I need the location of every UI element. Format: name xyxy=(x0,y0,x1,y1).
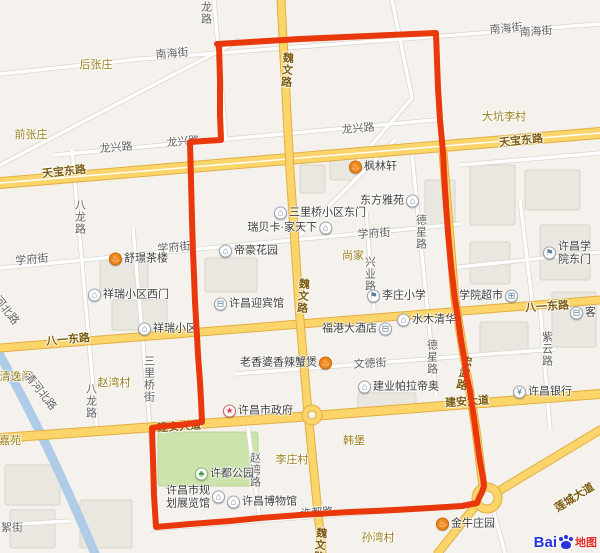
street-sanliqiaojie: 三里桥街 xyxy=(143,355,154,403)
poi-shujing-teahouse-label: 舒璟茶楼 xyxy=(124,253,168,266)
street-xuefujie-e: 学府街 xyxy=(357,224,391,242)
street-nanhaijie-e2: 南海街 xyxy=(519,22,553,40)
food-icon: ♨ xyxy=(436,518,449,531)
road-bayidonglu-w: 八一东路 xyxy=(45,329,90,349)
poi-ke-hotel[interactable]: ⊟客 xyxy=(570,307,596,320)
street-ziyunlu: 紫云路 xyxy=(541,331,552,367)
poi-fenglinxuan[interactable]: ♨枫林轩 xyxy=(349,161,397,174)
poi-fugang-hotel[interactable]: 福港大酒店⊟ xyxy=(322,323,392,336)
bldg-icon: ⌂ xyxy=(138,323,151,336)
poi-dihao-garden-label: 帝豪花园 xyxy=(234,245,278,258)
village-hanbao: 韩堡 xyxy=(343,432,365,448)
road-tianbaodonglu-e: 天宝东路 xyxy=(498,130,543,151)
village-shangjia: 尚家 xyxy=(342,247,364,263)
poi-xudu-park-label: 许都公园 xyxy=(210,468,254,481)
village-zhaowancun: 赵湾村 xyxy=(98,374,131,390)
poi-xiangrui-xiaoqu[interactable]: ⌂祥瑞小区 xyxy=(138,323,197,336)
street-xujie: 絮街 xyxy=(1,519,23,535)
poi-laoxiangpo-crab-pot[interactable]: 老香婆香辣蟹煲♨ xyxy=(240,357,332,370)
poi-xudu-park[interactable]: ♣许都公园 xyxy=(195,468,254,481)
bldg-icon: ⌂ xyxy=(397,314,410,327)
poi-sanliqiao-east-gate[interactable]: ⌂三里桥小区东门 xyxy=(274,207,366,220)
gov-icon: ★ xyxy=(223,405,236,418)
street-nanhaijie-e1: 南海街 xyxy=(489,19,523,38)
school-icon: ⚑ xyxy=(367,290,380,303)
poi-ruibeika-jiatianxia[interactable]: 瑞贝卡·家天下⌂ xyxy=(247,222,332,235)
street-nanhaijie-w: 南海街 xyxy=(155,44,189,63)
food-icon: ♨ xyxy=(109,253,122,266)
poi-xuchang-planning-hall[interactable]: 许昌市规 划展览馆⌂ xyxy=(166,484,225,509)
poi-xiangrui-west-gate-label: 祥瑞小区西门 xyxy=(103,289,169,302)
street-dexinglu-s: 德星路 xyxy=(426,339,437,375)
hotel-icon: ⊟ xyxy=(570,307,583,320)
hotel-icon: ⊟ xyxy=(379,323,392,336)
village-lizhuangcun: 李庄村 xyxy=(276,451,309,467)
poi-xuchang-bank[interactable]: ¥许昌银行 xyxy=(513,386,572,399)
poi-laoxiangpo-crab-pot-label: 老香婆香辣蟹煲 xyxy=(240,357,317,370)
food-icon: ♨ xyxy=(349,161,362,174)
food-icon: ♨ xyxy=(319,357,332,370)
poi-ke-hotel-label: 客 xyxy=(585,307,596,320)
poi-shuimuqinghua-label: 水木清华 xyxy=(412,314,456,327)
poi-shuimuqinghua[interactable]: ⌂水木清华 xyxy=(397,314,456,327)
market-icon: ⊞ xyxy=(505,290,518,303)
map-canvas[interactable]: 后张庄前张庄大坑李村尚家赵湾村清逸阁嘉苑李庄村韩堡孙湾村天宝东路天宝东路八一东路… xyxy=(0,0,600,553)
road-jiananddadao-e: 建安大道 xyxy=(444,391,489,410)
poi-ruibeika-jiatianxia-label: 瑞贝卡·家天下 xyxy=(247,222,317,235)
school-icon: ⚑ xyxy=(543,247,556,260)
poi-fenglinxuan-label: 枫林轩 xyxy=(364,161,397,174)
street-longxinglu-w: 龙兴路 xyxy=(99,138,133,157)
poi-xuchang-college-east-gate-label: 许昌学院东门 xyxy=(558,240,592,265)
bldg-icon: ⌂ xyxy=(358,381,371,394)
street-longxinglu-e: 龙兴路 xyxy=(341,119,375,138)
road-tianbaodonglu-w: 天宝东路 xyxy=(41,161,86,182)
bank-icon: ¥ xyxy=(513,386,526,399)
poi-dongfangyayuan-label: 东方雅苑 xyxy=(360,195,404,208)
street-dexinglu-n: 德星路 xyxy=(415,214,426,250)
street-longlu: 龙路 xyxy=(200,1,211,25)
road-jiananddadao-w: 建安大道 xyxy=(156,416,201,435)
baidu-paw-icon xyxy=(558,535,574,550)
village-houzhangzhuang: 后张庄 xyxy=(80,56,113,72)
village-qianzhangzhuang: 前张庄 xyxy=(15,126,48,142)
poi-jianye-palladio-label: 建业帕拉帝奥 xyxy=(373,381,439,394)
poi-fugang-hotel-label: 福港大酒店 xyxy=(322,323,377,336)
poi-jianye-palladio[interactable]: ⌂建业帕拉帝奥 xyxy=(358,381,439,394)
poi-lizhuang-primary-school[interactable]: ⚑李庄小学 xyxy=(367,290,426,303)
road-weiwenlu-s: 魏文路 xyxy=(312,527,327,553)
road-weiwenlu-m: 魏文路 xyxy=(295,278,308,315)
baidu-maps-logo: Bai 地图 xyxy=(534,535,597,550)
poi-jinniu-zhuangyuan[interactable]: ♨金牛庄园 xyxy=(436,518,495,531)
poi-xuchang-college-east-gate[interactable]: ⚑许昌学院东门 xyxy=(543,240,592,265)
bldg-icon: ⌂ xyxy=(319,222,332,235)
street-qinghebeilu: 清河北路 xyxy=(21,369,61,414)
poi-xuchang-city-government[interactable]: ★许昌市政府 xyxy=(223,405,293,418)
baidu-logo-text: Bai xyxy=(534,536,557,550)
museum-icon: ⌂ xyxy=(227,496,240,509)
road-bayidonglu-e: 八一东路 xyxy=(524,296,569,315)
poi-xueyuan-supermarket[interactable]: 学院超市⊞ xyxy=(459,290,518,303)
poi-xuchang-yingbinguan[interactable]: ⊟许昌迎宾馆 xyxy=(214,298,284,311)
village-jiayuan: 嘉苑 xyxy=(0,432,21,448)
museum-icon: ⌂ xyxy=(212,491,225,504)
poi-xiangrui-west-gate[interactable]: ⌂祥瑞小区西门 xyxy=(88,289,169,302)
hotel-icon: ⊟ xyxy=(214,298,227,311)
bldg-icon: ⌂ xyxy=(274,207,287,220)
poi-shujing-teahouse[interactable]: ♨舒璟茶楼 xyxy=(109,253,168,266)
poi-sanliqiao-east-gate-label: 三里桥小区东门 xyxy=(289,207,366,220)
street-wendejie: 文德街 xyxy=(353,354,387,372)
bldg-icon: ⌂ xyxy=(88,289,101,302)
village-sunwancun: 孙湾村 xyxy=(362,529,395,545)
street-hebeilu: 河北路 xyxy=(0,292,23,328)
street-xuefujie-w: 学府街 xyxy=(15,250,49,269)
poi-xiangrui-xiaoqu-label: 祥瑞小区 xyxy=(153,323,197,336)
road-lianchengdadao: 莲城大道 xyxy=(551,479,597,516)
park-icon: ♣ xyxy=(195,468,208,481)
poi-xuchang-museum-label: 许昌博物馆 xyxy=(242,496,297,509)
poi-xuchang-yingbinguan-label: 许昌迎宾馆 xyxy=(229,298,284,311)
bldg-icon: ⌂ xyxy=(219,245,232,258)
poi-xuchang-planning-hall-label: 许昌市规 划展览馆 xyxy=(166,484,210,509)
poi-dongfangyayuan[interactable]: 东方雅苑⌂ xyxy=(360,195,419,208)
poi-jinniu-zhuangyuan-label: 金牛庄园 xyxy=(451,518,495,531)
street-xudulu: 许都路 xyxy=(300,503,334,521)
poi-xuchang-city-government-label: 许昌市政府 xyxy=(238,405,293,418)
street-balonglu-s: 八龙路 xyxy=(85,383,96,419)
village-dakenglicun: 大坑李村 xyxy=(482,108,526,124)
bldg-icon: ⌂ xyxy=(406,195,419,208)
poi-xueyuan-supermarket-label: 学院超市 xyxy=(459,290,503,303)
street-longxinglu-m: 龙兴路 xyxy=(166,132,200,151)
road-weiwenlu-n: 魏文路 xyxy=(279,52,292,89)
road-zhongwulu: 忠武路 xyxy=(454,354,472,392)
poi-dihao-garden[interactable]: ⌂帝豪花园 xyxy=(219,245,278,258)
poi-xuchang-bank-label: 许昌银行 xyxy=(528,386,572,399)
street-balonglu-n: 八龙路 xyxy=(74,199,85,235)
map-labels-layer: 后张庄前张庄大坑李村尚家赵湾村清逸阁嘉苑李庄村韩堡孙湾村天宝东路天宝东路八一东路… xyxy=(0,0,600,553)
poi-lizhuang-primary-school-label: 李庄小学 xyxy=(382,290,426,303)
street-xingyelu: 兴业路 xyxy=(364,256,375,292)
baidu-map-text: 地图 xyxy=(575,537,597,550)
poi-xuchang-museum[interactable]: ⌂许昌博物馆 xyxy=(227,496,297,509)
